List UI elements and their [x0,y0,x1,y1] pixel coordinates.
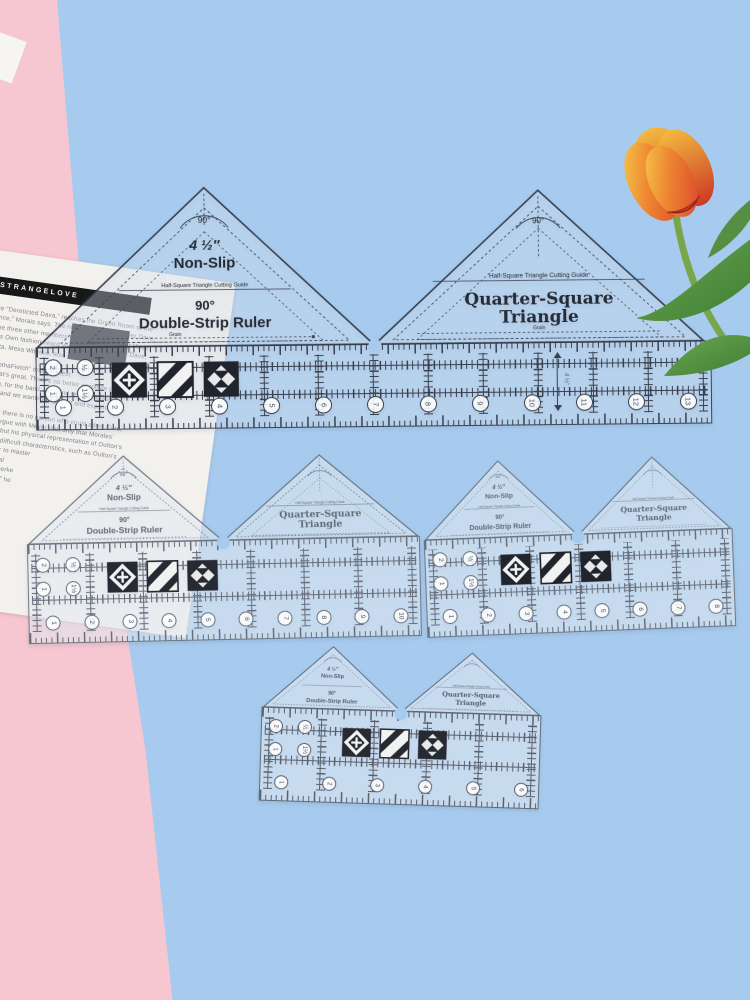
scale-number-circle: 8 [419,395,436,412]
measure-arrow-label: 4 ½″ [563,373,569,385]
diamond-in-square-icon [341,727,372,758]
measure-number-circle: 2 [35,558,50,573]
scale-number-circle: 5 [263,397,280,414]
cutting-guide-label: Half-Square Triangle Cutting Guide [161,282,248,289]
scale-number-circle: 3 [518,606,534,622]
large-double-strip-triangle: 90° 4 ½″ Non-Slip Half-Square Triangle C… [34,184,376,350]
scale-number-circle: 9 [472,395,489,412]
scale-number-circle: 2 [480,607,496,623]
measure-number-circle: 2 [269,719,283,733]
corner-measure-numbers: 2½11½ [45,359,94,403]
scale-number-circle: 4 [161,613,176,628]
measure-number-circle: 2 [45,359,62,376]
size-label: 4 ½″ [188,237,221,253]
scale-number-circle: 7 [367,396,384,413]
scale-number-circle: 2 [107,399,124,416]
corner-measure-numbers: 2½11½ [268,719,312,757]
small-double-strip-triangle: 4 ½″ Non-Slip 90° Double-Strip Ruler [262,643,405,713]
scale-number-circle: 8 [316,610,331,625]
scale-number-circle: 4 [556,604,572,620]
scale-number-circle: 9 [355,609,370,624]
measure-number-circle: 1 [268,742,282,756]
medium-quarter-square-triangle: Half-Square Triangle Cutting Guide Quart… [575,452,733,536]
angle-label: 90° [328,691,336,697]
scale-number-circle: 3 [370,778,384,792]
measure-number-circle: ½ [462,551,478,567]
apex-angle-label: 90° [120,472,127,477]
small-ruler-strip: 2½11½ 123456 [259,707,542,810]
quarter-square-label-2: Triangle [636,512,672,522]
diamond-in-square-icon [499,553,532,586]
ruler-small: 4 ½″ Non-Slip 90° Double-Strip Ruler Hal… [259,643,544,812]
measure-number-circle: 1½ [66,581,81,596]
medium-left-ruler-strip: 2½11½ 12345678910 [27,536,422,644]
size-label: 4 ½″ [326,666,339,673]
quilt-block-icons [341,727,456,761]
measure-number-circle: ½ [65,557,80,572]
corner-measure-numbers: 2½11½ [432,551,478,592]
quarter-square-label-2: Triangle [455,699,486,708]
quilt-block-icons [111,360,249,398]
diagonal-stripes-icon [539,551,572,584]
scale-number-circle: 3 [123,614,138,629]
scale-number-circle: 2 [322,777,336,791]
scale-number-circle: 5 [594,603,610,619]
scale-number-circle: 7 [277,611,292,626]
measure-number-circle: ½ [298,720,312,734]
scale-number-circle: 6 [514,783,528,797]
size-label: 4 ½″ [115,483,133,492]
small-quarter-square-triangle: Half-Square Triangle Cutting Guide Quart… [400,649,543,717]
measure-number-circle: ½ [77,359,94,376]
medium-double-strip-triangle: 90° 4 ½″ Non-Slip Half-Square Triangle C… [421,456,579,542]
grain-label: Grain [169,332,182,338]
double-strip-label: Double-Strip Ruler [87,524,164,536]
scale-number-circle: 8 [708,598,724,614]
ruler-medium-right: 90° 4 ½″ Non-Slip Half-Square Triangle C… [421,450,737,640]
tulip-flower [580,90,750,400]
measure-number-circle: 1½ [463,575,479,591]
medium-right-ruler-strip: 2½11½ 12345678 [424,528,737,638]
angle-label: 90° [195,298,215,313]
scale-number-circle: 4 [418,780,432,794]
tulip-leaf [664,335,750,376]
hourglass-block-icon [186,559,219,592]
scale-number-circle: 2 [84,615,99,630]
apex-angle-label: 90° [198,215,211,225]
scale-number-circle: 5 [200,612,215,627]
non-slip-label: Non-Slip [321,673,345,680]
measure-number-circle: 2 [432,552,448,568]
grain-label: Grain [533,325,546,331]
size-label: 4 ½″ [491,484,506,492]
measure-number-circle: 1 [433,576,449,592]
diamond-in-square-icon [106,561,139,594]
diamond-in-square-icon [111,361,148,398]
diagonal-stripes-icon [157,361,194,398]
cutting-guide-label: Half-Square Triangle Cutting Guide [489,272,589,280]
non-slip-label: Non-Slip [107,493,141,503]
scale-number-circle: 4 [211,398,228,415]
quilt-block-icons [106,559,227,594]
double-strip-label: Double-Strip Ruler [139,314,272,332]
scale-number-circle: 10 [393,608,408,623]
tulip-head [610,111,727,233]
diagonal-stripes-icon [379,728,410,759]
medium-double-strip-triangle: 90° 4 ½″ Non-Slip Half-Square Triangle C… [25,452,224,546]
corner-measure-numbers: 2½11½ [35,557,81,597]
scale-number-circle: 7 [670,600,686,616]
scale-number-circle: 10 [524,394,541,411]
quilt-block-icons [499,549,620,586]
scale-number-circle: 1 [55,399,72,416]
non-slip-label: Non-Slip [485,492,513,500]
scale-number-circle: 6 [315,396,332,413]
hourglass-block-icon [203,360,240,397]
scale-number-circle: 1 [442,609,458,625]
apex-angle-label: 90° [532,216,544,225]
angle-label: 90° [119,516,130,524]
measure-number-circle: 1½ [297,743,311,757]
non-slip-label: Non-Slip [174,254,236,272]
hourglass-block-icon [417,730,448,761]
hourglass-block-icon [579,550,612,583]
ruler-medium-left: 90° 4 ½″ Non-Slip Half-Square Triangle C… [25,448,422,646]
diagonal-stripes-icon [146,560,179,593]
scale-number-circle: 5 [466,781,480,795]
scale-number-circle: 1 [45,615,60,630]
hanging-notch [368,339,381,352]
apex-angle-label: 90° [495,474,502,479]
scale-number-circle: 6 [239,611,254,626]
scale-number-circle: 6 [632,601,648,617]
medium-quarter-square-triangle: Half-Square Triangle Cutting Guide Quart… [221,451,420,542]
angle-label: 90° [495,515,505,521]
scale-number-circle: 1 [274,775,288,789]
measure-number-circle: 1 [36,582,51,597]
scale-number-circle: 3 [159,398,176,415]
quarter-square-label-2: Triangle [299,519,343,531]
